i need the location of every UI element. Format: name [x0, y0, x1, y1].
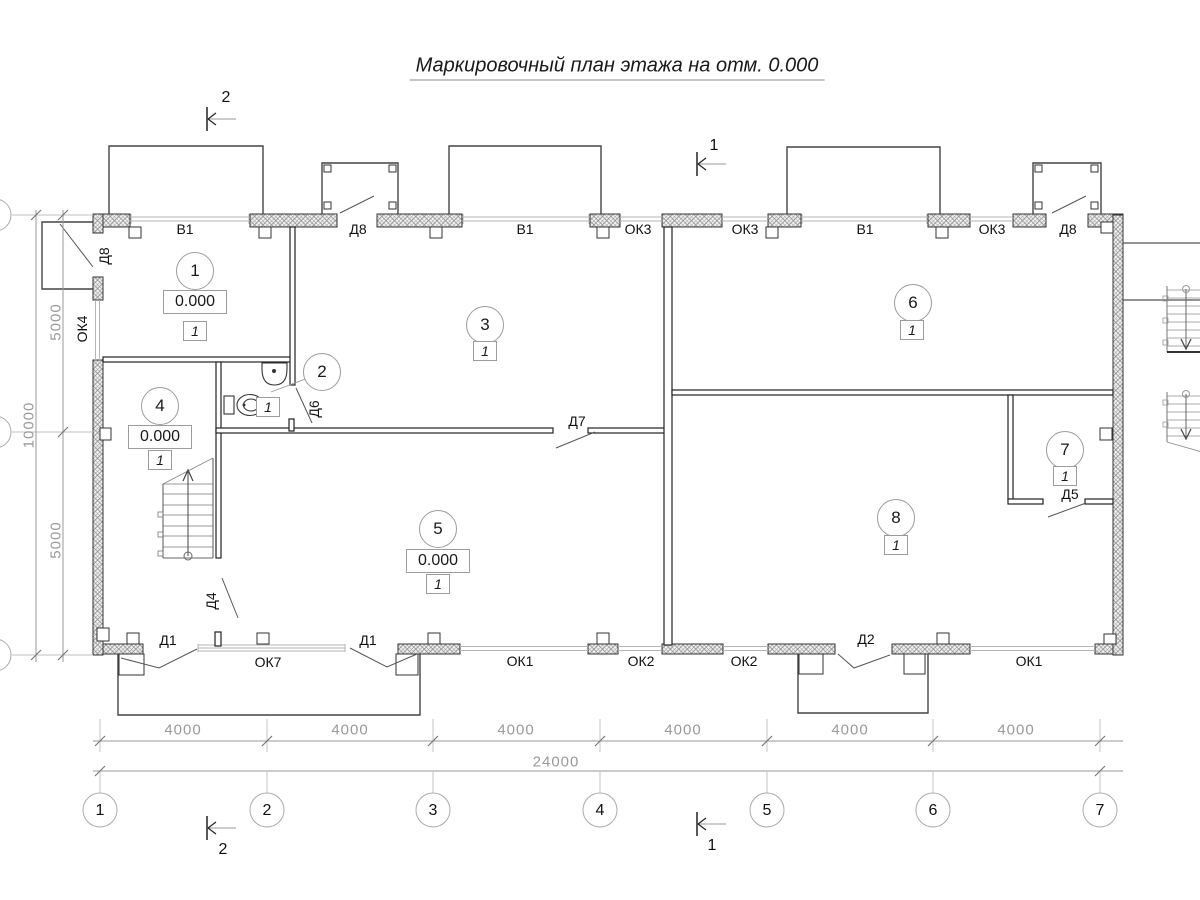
axis-1: 1	[96, 803, 105, 819]
room-number-1: 1	[176, 252, 214, 290]
dim-bay: 4000	[997, 723, 1034, 738]
window-label-ok3: ОК3	[979, 222, 1006, 236]
room-number-7: 7	[1046, 431, 1084, 469]
dim-bay: 4000	[497, 723, 534, 738]
door-label-d2: Д2	[857, 632, 874, 646]
window-label-ok2: ОК2	[628, 654, 655, 668]
room-elevation-4: 0.000	[128, 425, 192, 449]
section-mark-2-top: 2	[222, 90, 231, 106]
door-d6-jamb	[289, 419, 294, 431]
room-finish-1: 1	[183, 321, 207, 341]
room-number-8: 8	[877, 499, 915, 537]
room-number-6: 6	[894, 284, 932, 322]
axis-2: 2	[263, 803, 272, 819]
door-d8-top-left-swing	[340, 196, 374, 213]
stairs-exterior	[1123, 243, 1200, 452]
room-number-3: 3	[466, 306, 504, 344]
dim-10000: 10000	[22, 402, 37, 449]
room-finish-8: 1	[884, 535, 908, 555]
window-label-ok7: ОК7	[255, 655, 282, 669]
dim-5000-lower: 5000	[49, 521, 64, 558]
axis-4: 4	[596, 803, 605, 819]
room-finish-7: 1	[1053, 466, 1077, 486]
door-d2-swing	[838, 654, 890, 668]
window-label-v1: В1	[176, 222, 193, 236]
room-number-5: 5	[419, 510, 457, 548]
plan-linework	[0, 0, 1200, 900]
window-label-ok1: ОК1	[1016, 654, 1043, 668]
room-number-2: 2	[303, 353, 341, 391]
door-label-d8: Д8	[97, 247, 111, 264]
dim-bay: 4000	[664, 723, 701, 738]
section-mark-1-top: 1	[710, 138, 719, 154]
axis-3: 3	[429, 803, 438, 819]
window-label-v1: В1	[856, 222, 873, 236]
door-label-d5: Д5	[1061, 487, 1078, 501]
door-d4-jamb	[215, 632, 221, 646]
room-finish-3: 1	[473, 341, 497, 361]
axis-7: 7	[1096, 803, 1105, 819]
section-mark-2-bottom: 2	[219, 842, 228, 858]
room-finish-5: 1	[426, 574, 450, 594]
door-label-d6: Д6	[307, 400, 321, 417]
window-label-ok2: ОК2	[731, 654, 758, 668]
window-label-ok4: ОК4	[75, 316, 89, 343]
door-label-d8: Д8	[1059, 222, 1076, 236]
door-label-d8: Д8	[349, 222, 366, 236]
dim-bay: 4000	[164, 723, 201, 738]
window-label-v1: В1	[516, 222, 533, 236]
interior-walls	[103, 227, 1113, 645]
room-finish-6: 1	[900, 320, 924, 340]
door-d5-swing	[1048, 503, 1086, 517]
dim-total: 24000	[533, 755, 580, 770]
window-label-ok3: ОК3	[625, 222, 652, 236]
door-d8-top-right-swing	[1052, 196, 1086, 213]
window-label-ok3: ОК3	[732, 222, 759, 236]
wc-tank	[224, 396, 234, 414]
room-elevation-1: 0.000	[163, 290, 227, 314]
room-elevation-5: 0.000	[406, 549, 470, 573]
door-label-d1: Д1	[359, 633, 376, 647]
axis-5: 5	[763, 803, 772, 819]
sink-tap	[272, 369, 276, 373]
dim-bay: 4000	[831, 723, 868, 738]
dim-bay: 4000	[331, 723, 368, 738]
axis-6: 6	[929, 803, 938, 819]
room-finish-2: 1	[256, 397, 280, 417]
room-finish-4: 1	[148, 450, 172, 470]
door-d4-swing	[222, 578, 238, 618]
room-number-4: 4	[141, 387, 179, 425]
exterior-walls	[93, 214, 1123, 655]
window-label-ok1: ОК1	[507, 654, 534, 668]
door-label-d4: Д4	[204, 592, 218, 609]
door-label-d1: Д1	[159, 633, 176, 647]
door-d8-left-swing	[60, 224, 93, 267]
door-d7-swing	[556, 432, 595, 448]
section-mark-1-bottom: 1	[708, 838, 717, 854]
dimension-lines	[0, 199, 1123, 793]
stairs-interior	[158, 458, 213, 560]
sink	[262, 363, 287, 385]
dim-5000-upper: 5000	[49, 303, 64, 340]
floor-plan-drawing: Маркировочный план этажа на отм. 0.000 В…	[0, 0, 1200, 900]
drawing-title: Маркировочный план этажа на отм. 0.000	[410, 56, 825, 81]
door-label-d7: Д7	[568, 414, 585, 428]
